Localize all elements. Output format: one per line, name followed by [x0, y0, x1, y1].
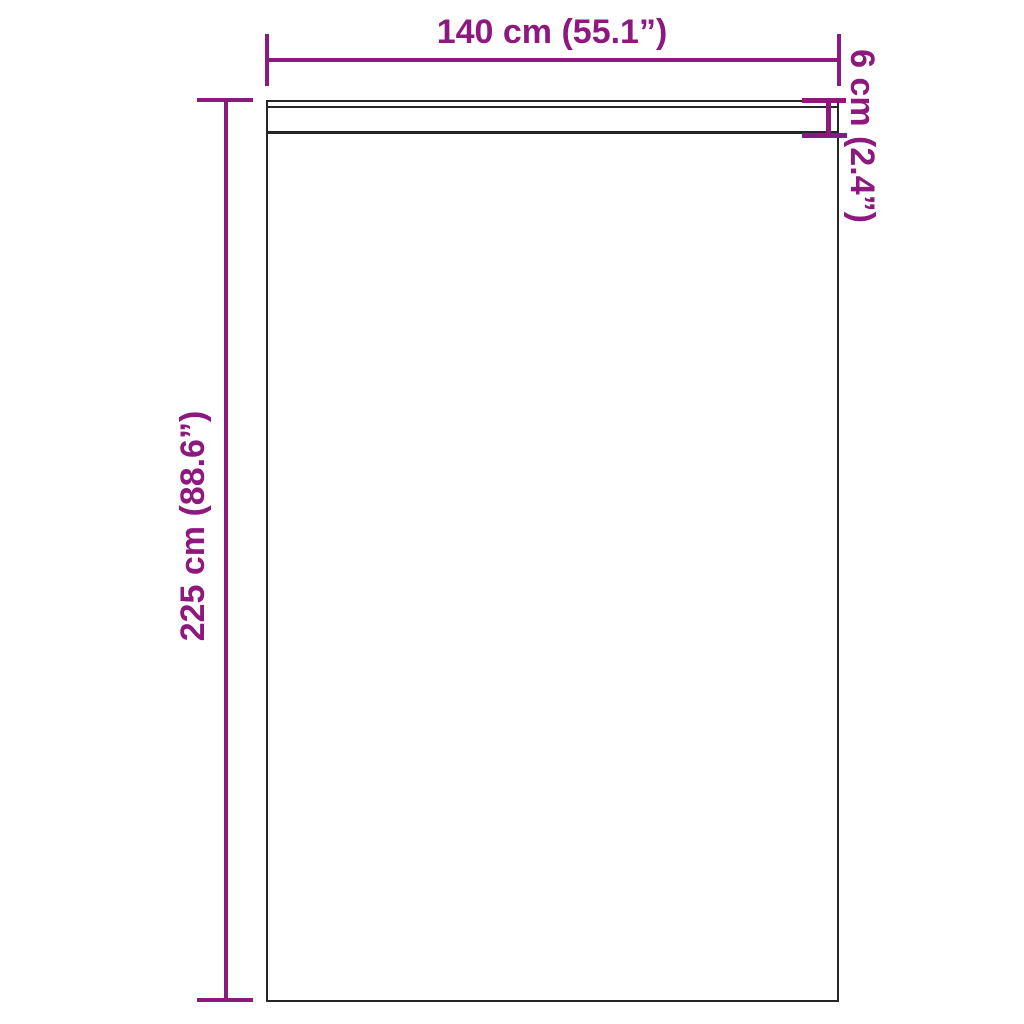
width-dimension-tick-right — [837, 34, 841, 86]
height-dimension-line — [224, 98, 228, 1002]
header-band-line-thin — [268, 106, 837, 108]
width-dimension-tick-left — [265, 34, 269, 86]
height-dimension-tick-bottom — [197, 998, 253, 1002]
header-band-line-thick — [268, 131, 837, 134]
width-dimension-label: 140 cm (55.1”) — [437, 15, 668, 49]
band-dimension-tick-top — [802, 98, 846, 103]
band-dimension-label: 6 cm (2.4”) — [845, 49, 879, 223]
dimension-diagram: 140 cm (55.1”) 225 cm (88.6”) 6 cm (2.4”… — [0, 0, 1024, 1024]
curtain-panel-outline — [266, 100, 839, 1002]
width-dimension-line — [265, 58, 841, 62]
height-dimension-tick-top — [197, 98, 253, 102]
band-dimension-tick-bottom — [802, 133, 847, 138]
height-dimension-label: 225 cm (88.6”) — [176, 411, 210, 642]
